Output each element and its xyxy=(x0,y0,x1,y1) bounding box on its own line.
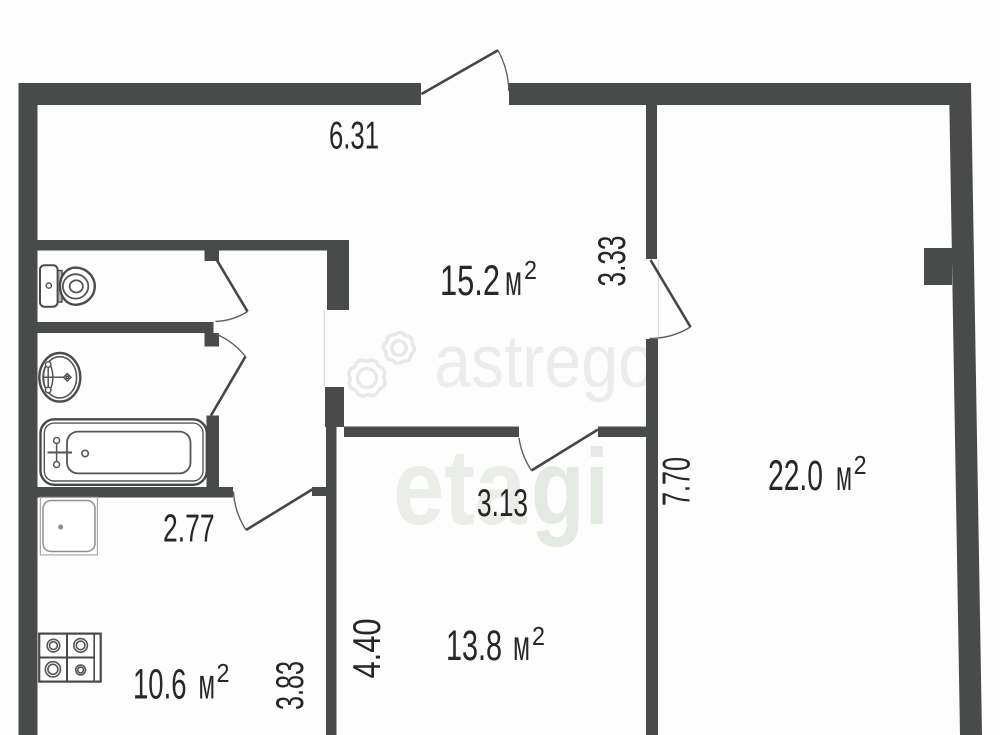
svg-text:м: м xyxy=(513,622,530,670)
svg-text:gi: gi xyxy=(531,426,609,547)
svg-text:13.8: 13.8 xyxy=(446,622,502,670)
svg-text:22.0: 22.0 xyxy=(768,452,823,500)
svg-text:astrego: astrego xyxy=(434,319,655,403)
svg-text:3.33: 3.33 xyxy=(591,236,634,287)
svg-text:2: 2 xyxy=(532,621,545,651)
svg-text:4.40: 4.40 xyxy=(346,619,389,679)
svg-text:м: м xyxy=(505,257,522,305)
svg-text:3.83: 3.83 xyxy=(269,661,312,710)
svg-text:7.70: 7.70 xyxy=(656,457,699,506)
svg-text:6.31: 6.31 xyxy=(329,115,379,158)
svg-text:м: м xyxy=(199,661,216,709)
svg-text:3.13: 3.13 xyxy=(477,482,528,525)
svg-text:2.77: 2.77 xyxy=(163,508,215,551)
svg-text:м: м xyxy=(836,452,852,500)
svg-text:10.6: 10.6 xyxy=(133,661,187,709)
svg-text:15.2: 15.2 xyxy=(440,257,500,305)
svg-text:2: 2 xyxy=(217,658,230,688)
svg-text:2: 2 xyxy=(524,255,537,285)
svg-text:2: 2 xyxy=(854,450,867,480)
